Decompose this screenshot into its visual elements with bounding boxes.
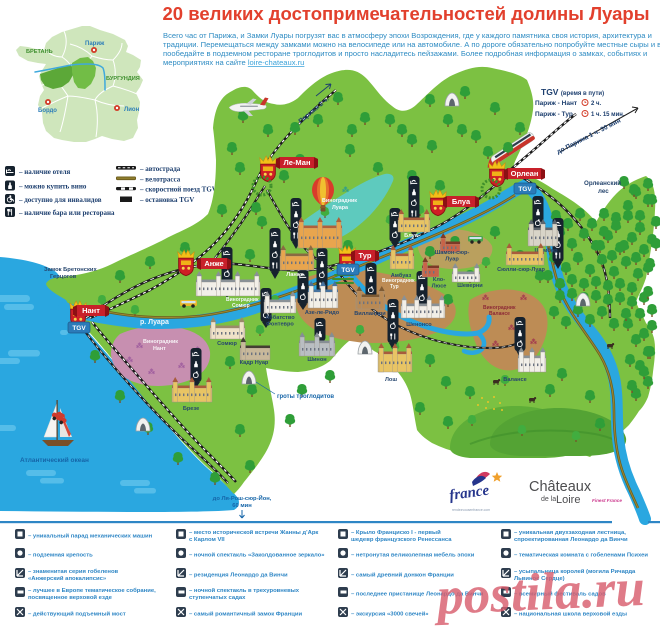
svg-text:шедевр французского Ренессанса: шедевр французского Ренессанса xyxy=(351,536,452,543)
svg-text:– экскурсия «3000 свечей»: – экскурсия «3000 свечей» xyxy=(351,611,429,618)
svg-text:Нант: Нант xyxy=(82,306,100,315)
svg-text:TGV: TGV xyxy=(518,186,532,193)
svg-text:– ночной спектакль в трехуровн: – ночной спектакль в трехуровневых xyxy=(189,587,300,594)
svg-text:⁂: ⁂ xyxy=(482,293,489,302)
svg-text:мероприятиях на сайте loire-ch: мероприятиях на сайте loire-chateaux.ru xyxy=(163,58,304,67)
svg-text:– можно купить вино: – можно купить вино xyxy=(18,183,87,191)
svg-text:Тур: Тур xyxy=(390,284,399,290)
svg-text:⁂: ⁂ xyxy=(530,337,537,346)
svg-text:традиции. Перемещаться между з: традиции. Перемещаться между замками мож… xyxy=(163,40,660,49)
svg-text:Анже: Анже xyxy=(204,259,223,268)
svg-text:Блуа: Блуа xyxy=(404,233,419,239)
svg-text:2 ч.: 2 ч. xyxy=(591,101,601,107)
svg-text:Орлеан: Орлеан xyxy=(511,169,539,178)
svg-text:Сомюр: Сомюр xyxy=(217,341,237,347)
svg-text:Loire: Loire xyxy=(556,494,580,506)
svg-text:Тур: Тур xyxy=(359,251,372,260)
svg-text:Нант: Нант xyxy=(153,346,166,352)
svg-text:Валансе: Валансе xyxy=(489,311,510,317)
svg-text:– наличие отеля: – наличие отеля xyxy=(18,168,71,176)
svg-text:rendezvousenfrance.com: rendezvousenfrance.com xyxy=(452,508,490,512)
svg-text:– действующий подъемный мост: – действующий подъемный мост xyxy=(28,611,126,618)
svg-text:Орлеанский: Орлеанский xyxy=(584,180,621,187)
svg-text:Сомюр: Сомюр xyxy=(232,303,250,309)
svg-text:Фонтевро: Фонтевро xyxy=(266,322,294,328)
svg-text:– подземная крепость: – подземная крепость xyxy=(28,553,93,559)
svg-text:Валансе: Валансе xyxy=(503,377,526,383)
svg-text:TGV: TGV xyxy=(72,325,86,332)
svg-text:Атлантический океан: Атлантический океан xyxy=(20,456,89,464)
svg-text:⁂: ⁂ xyxy=(492,339,499,348)
svg-text:20 великих достопримечательнос: 20 великих достопримечательностей долины… xyxy=(162,3,649,24)
svg-text:– доступно для инвалидов: – доступно для инвалидов xyxy=(18,196,102,204)
svg-text:посвященное верховой езде: посвященное верховой езде xyxy=(28,594,113,601)
svg-text:Кло-: Кло- xyxy=(433,277,445,283)
svg-text:– место исторической встречи Ж: – место исторической встречи Жанны д'Арк xyxy=(189,529,318,536)
svg-text:60 мин: 60 мин xyxy=(232,503,252,509)
svg-text:Всего час от Парижа, и Замки Л: Всего час от Парижа, и Замки Луары погру… xyxy=(163,31,652,40)
svg-text:Finest France: Finest France xyxy=(592,498,622,503)
svg-text:БУРГУНДИЯ: БУРГУНДИЯ xyxy=(106,76,140,82)
svg-text:Лош: Лош xyxy=(385,377,397,383)
svg-text:пообедайте в подземном рестора: пообедайте в подземном ресторане троглод… xyxy=(163,49,647,58)
svg-text:Луар: Луар xyxy=(445,257,459,263)
svg-text:– скоростной поезд TGV: – скоростной поезд TGV xyxy=(139,186,217,194)
svg-text:Вилландри: Вилландри xyxy=(354,311,386,317)
svg-text:Сюлли-сюр-Луар: Сюлли-сюр-Луар xyxy=(497,267,545,273)
svg-text:– Крыло Франциско I - первый: – Крыло Франциско I - первый xyxy=(351,529,441,536)
svg-text:Азе-ле-Ридо: Азе-ле-Ридо xyxy=(305,310,340,316)
svg-text:Бордо: Бордо xyxy=(38,108,57,114)
svg-text:Лион: Лион xyxy=(124,107,140,113)
svg-text:⁂: ⁂ xyxy=(520,293,527,302)
svg-text:Париж - Тур: Париж - Тур xyxy=(535,111,573,118)
svg-text:⁂: ⁂ xyxy=(136,341,143,350)
svg-text:Люсе: Люсе xyxy=(432,284,447,290)
svg-text:Ланже: Ланже xyxy=(286,272,304,278)
svg-text:Блуа: Блуа xyxy=(452,197,471,206)
svg-text:Париж - Нант: Париж - Нант xyxy=(535,100,577,107)
svg-text:гроты троглодитов: гроты троглодитов xyxy=(277,394,334,400)
svg-text:«Анжерский апокалипсис»: «Анжерский апокалипсис» xyxy=(28,575,107,582)
svg-text:1 ч. 15 мин.: 1 ч. 15 мин. xyxy=(591,112,625,118)
svg-text:Виноградник: Виноградник xyxy=(322,198,357,204)
svg-text:Герцогов: Герцогов xyxy=(50,274,77,280)
svg-text:⁂: ⁂ xyxy=(178,361,185,370)
svg-text:Луара: Луара xyxy=(332,205,349,211)
svg-text:– самый романтичный замок Фран: – самый романтичный замок Франции xyxy=(189,611,302,618)
svg-text:– знаменитая серия гобеленов: – знаменитая серия гобеленов xyxy=(28,568,119,575)
svg-text:Шеверни: Шеверни xyxy=(457,283,483,289)
svg-text:БРЕТАНЬ: БРЕТАНЬ xyxy=(26,49,53,55)
svg-text:Аббатство: Аббатство xyxy=(265,314,295,321)
svg-text:ступенчатых садах: ступенчатых садах xyxy=(189,595,246,601)
svg-text:– уникальная двухзаходная лест: – уникальная двухзаходная лестница, xyxy=(514,530,626,536)
svg-text:Замок Бретонских: Замок Бретонских xyxy=(44,267,97,273)
svg-text:спроектированная Леонардо да В: спроектированная Леонардо да Винчи xyxy=(514,537,628,543)
svg-text:⁂: ⁂ xyxy=(508,323,515,332)
svg-text:Брезе: Брезе xyxy=(183,406,199,412)
svg-text:Шенонсо: Шенонсо xyxy=(406,322,432,328)
svg-text:TGV: TGV xyxy=(341,267,355,274)
svg-text:Châteaux: Châteaux xyxy=(529,479,592,495)
svg-text:postila.ru: postila.ru xyxy=(432,559,646,626)
svg-text:– остановка TGV: – остановка TGV xyxy=(139,196,194,204)
svg-text:– уникальный парад механически: – уникальный парад механических машин xyxy=(28,533,153,540)
svg-text:⁂: ⁂ xyxy=(342,185,349,194)
svg-text:Париж: Париж xyxy=(85,41,105,47)
svg-text:– автострада: – автострада xyxy=(139,165,181,173)
svg-text:– ночной спектакль «Заколдован: – ночной спектакль «Заколдованное зеркал… xyxy=(189,552,325,559)
svg-text:⁂: ⁂ xyxy=(148,367,155,376)
svg-text:– нетронутая великолепная мебе: – нетронутая великолепная мебель эпохи xyxy=(351,552,475,559)
svg-text:Шинон: Шинон xyxy=(307,357,326,363)
svg-text:р. Луара: р. Луара xyxy=(140,319,169,326)
svg-text:Ле-Ман: Ле-Ман xyxy=(284,158,311,167)
svg-text:– велотрасса: – велотрасса xyxy=(139,176,181,184)
svg-text:до Ля-Рош-сюр-Йон,: до Ля-Рош-сюр-Йон, xyxy=(213,494,272,502)
svg-text:лес: лес xyxy=(598,188,609,195)
svg-text:– резиденция Леонардо да Винчи: – резиденция Леонардо да Винчи xyxy=(189,573,288,579)
svg-text:Виноградник: Виноградник xyxy=(143,339,178,345)
svg-text:– наличие бара или ресторана: – наличие бара или ресторана xyxy=(18,209,115,217)
svg-text:– тематическая комната с гобел: – тематическая комната с гобеленами Псих… xyxy=(514,552,648,559)
svg-text:de la: de la xyxy=(541,496,556,503)
svg-text:Кадр Нуар: Кадр Нуар xyxy=(240,360,269,366)
svg-text:– лучшее в Европе тематическое: – лучшее в Европе тематическое собрание, xyxy=(28,587,156,594)
svg-text:с Карлом VII: с Карлом VII xyxy=(189,537,225,543)
svg-text:Шамон-сюр-: Шамон-сюр- xyxy=(435,250,470,256)
